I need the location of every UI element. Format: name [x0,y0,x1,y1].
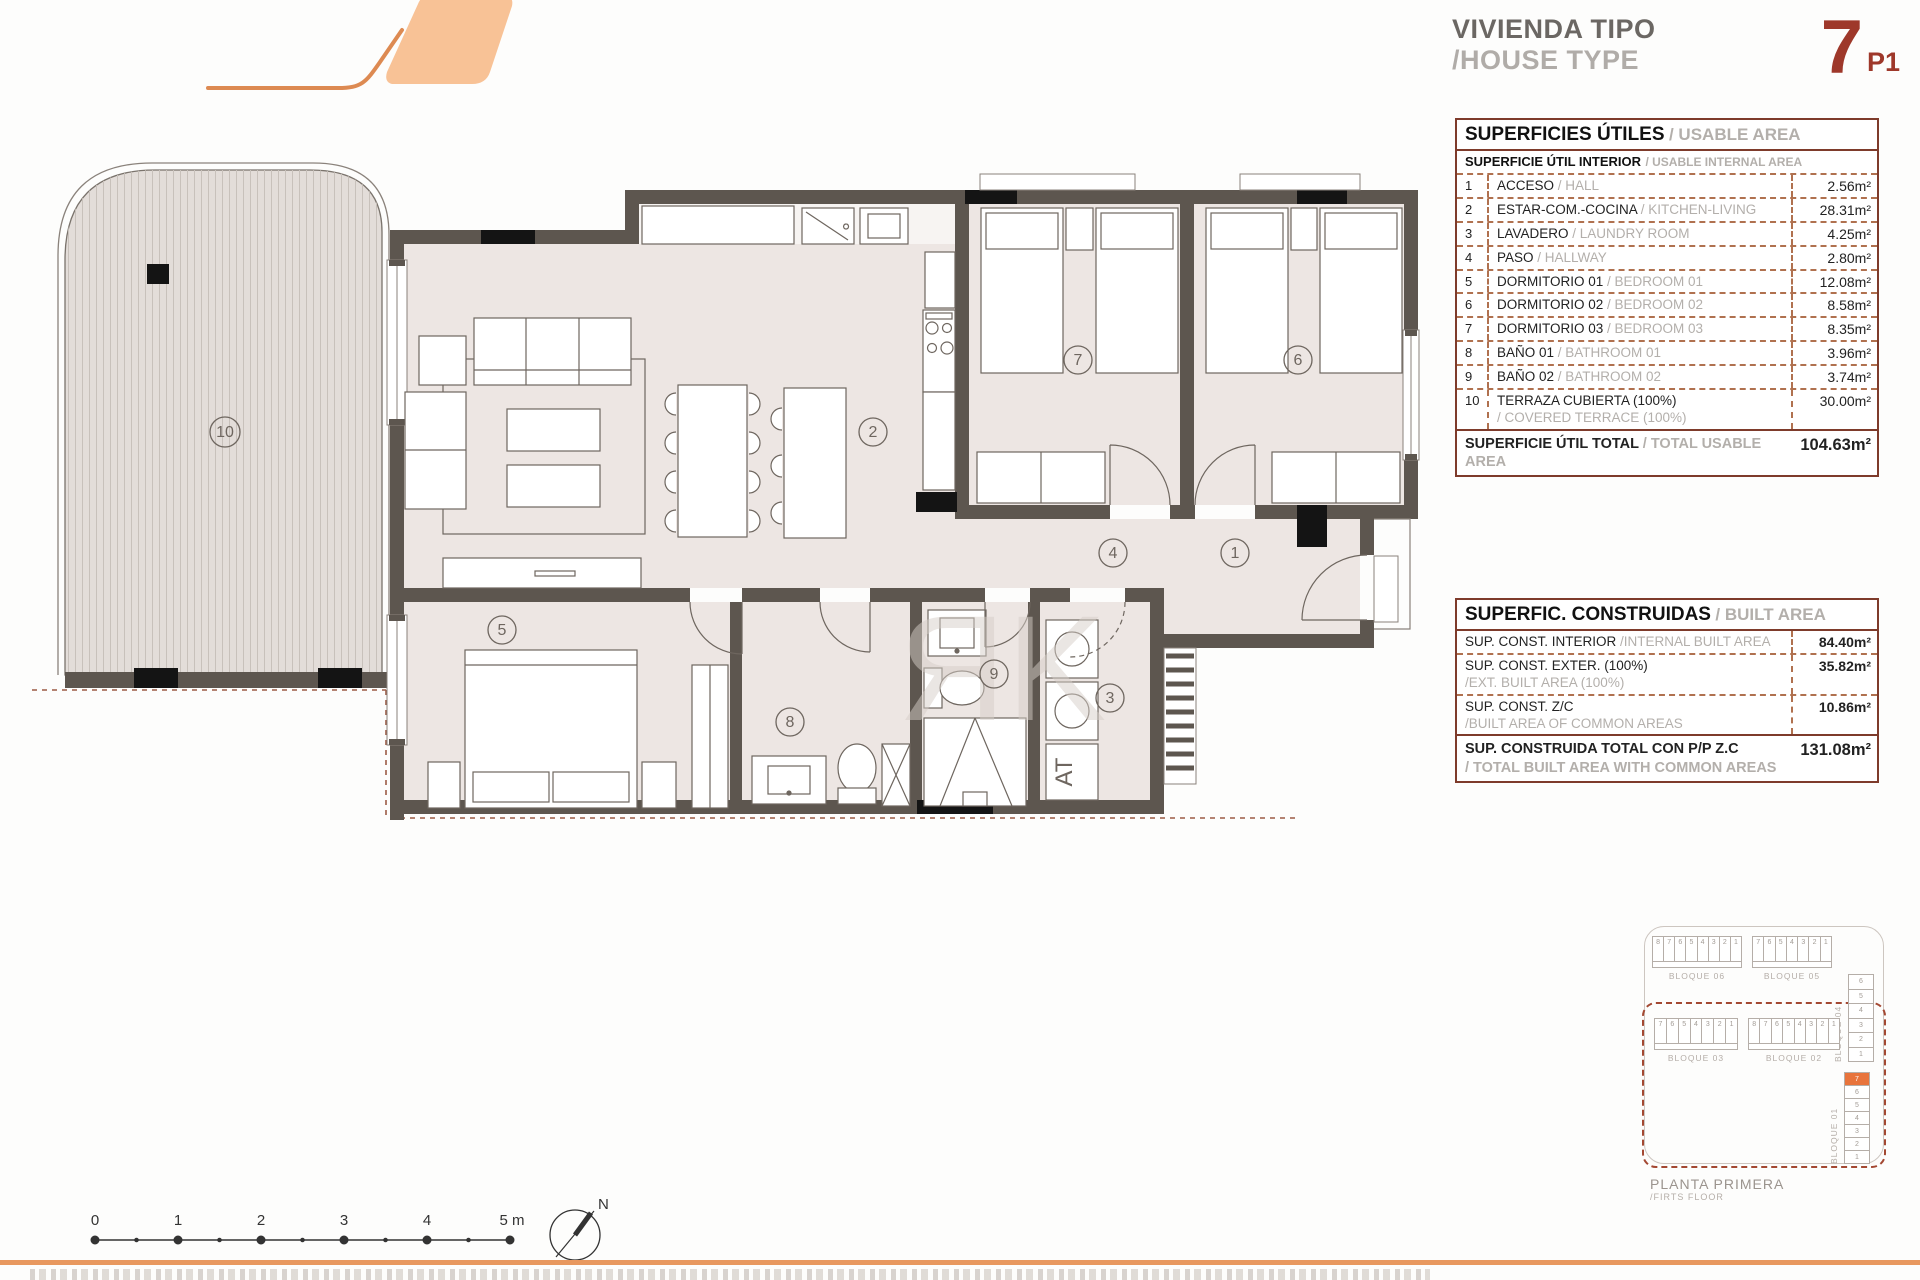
sofa [474,318,631,385]
room-area-value: 8.35m² [1791,318,1877,340]
built-table-rows: SUP. CONST. INTERIOR /INTERNAL BUILT ARE… [1457,631,1877,734]
key-plan-unit-cell-highlighted: 7 [1845,1073,1869,1086]
built-title-es: SUPERFIC. CONSTRUIDAS [1465,604,1711,625]
north-label: N [598,1196,609,1213]
scale-label-5m: 5 m [499,1212,524,1229]
coffee-table [507,465,600,507]
room-name: LAVADERO / LAUNDRY ROOM [1489,223,1791,245]
built-name: SUP. CONST. EXTER. (100%)/EXT. BUILT ARE… [1457,655,1791,694]
room-area-value: 8.58m² [1791,294,1877,316]
key-plan-unit-cell: 1 [1829,1019,1839,1043]
key-plan-cells: 7654321 [1654,1018,1738,1044]
usable-total-label: SUPERFICIE ÚTIL TOTAL / TOTAL USABLE ARE… [1465,435,1800,471]
toilet [838,744,876,792]
key-plan-unit-cell: 3 [1806,1019,1817,1043]
row-number: 2 [1457,199,1489,221]
key-plan-block-strip [1654,1044,1738,1050]
key-plan-unit-cell: 4 [1698,937,1709,961]
built-area-value: 35.82m² [1791,655,1877,694]
floor-code: P1 [1867,47,1900,78]
usable-table-row: 7DORMITORIO 03 / BEDROOM 038.35m² [1457,318,1877,342]
key-plan-floor-en: /FIRTS FLOOR [1650,1192,1784,1202]
usable-table-row: 5DORMITORIO 01 / BEDROOM 0112.08m² [1457,271,1877,295]
footer-orange-rule [0,1260,1920,1265]
room-label-2: 2 [869,424,878,441]
built-total-es: SUP. CONSTRUIDA TOTAL CON P/P Z.C [1465,741,1739,757]
house-type-title: VIVIENDA TIPO /HOUSE TYPE [1452,14,1656,82]
built-total-row: SUP. CONSTRUIDA TOTAL CON P/P Z.C / TOTA… [1457,734,1877,780]
key-plan-cells: 7654321 [1752,936,1832,962]
key-plan-unit-cell: 1 [1731,937,1741,961]
key-plan-unit-cell: 6 [1667,1019,1679,1043]
bed [1096,208,1178,373]
key-plan-unit-cell: 4 [1849,1004,1873,1019]
scale-label-2: 2 [257,1212,265,1229]
coffee-table [507,409,600,451]
usable-subtitle-en: / USABLE INTERNAL AREA [1645,155,1802,169]
key-plan-unit-cell: 2 [1720,937,1731,961]
key-plan-unit-cell: 6 [1675,937,1686,961]
key-plan-unit-cell: 3 [1845,1125,1869,1138]
built-name: SUP. CONST. Z/C/BUILT AREA OF COMMON ARE… [1457,696,1791,735]
key-plan-unit-cell: 4 [1795,1019,1806,1043]
key-plan-cells: 7654321 [1844,1072,1870,1164]
usable-table-row: 1ACCESO / HALL2.56m² [1457,175,1877,199]
sink-vanity [752,756,826,804]
built-table-row: SUP. CONST. Z/C/BUILT AREA OF COMMON ARE… [1457,696,1877,735]
company-logo [0,0,560,100]
room-name: PASO / HALLWAY [1489,247,1791,269]
scale-label-3: 3 [340,1212,348,1229]
built-table-header: SUPERFIC. CONSTRUIDAS / BUILT AREA [1457,600,1877,631]
key-plan-unit-cell: 5 [1686,937,1697,961]
key-plan-unit-cell: 6 [1849,975,1873,990]
dishwasher [860,208,908,244]
nightstand [1066,208,1093,250]
room-label-7: 7 [1074,352,1083,369]
key-plan-unit-cell: 2 [1845,1138,1869,1151]
key-plan-unit-cell: 1 [1845,1151,1869,1163]
stove [923,310,955,392]
key-plan-unit-cell: 8 [1653,937,1664,961]
usable-table-row: 2ESTAR-COM.-COCINA / KITCHEN-LIVING28.31… [1457,199,1877,223]
usable-area-table: SUPERFICIES ÚTILES / USABLE AREA SUPERFI… [1455,118,1879,477]
built-name: SUP. CONST. INTERIOR /INTERNAL BUILT ARE… [1457,631,1791,653]
logo-parallelogram [386,0,512,84]
nightstand [642,762,676,808]
built-table-row: SUP. CONST. INTERIOR /INTERNAL BUILT ARE… [1457,631,1877,655]
key-plan-block-label: BLOQUE 05 [1752,971,1832,981]
key-plan-unit-cell: 8 [1749,1019,1760,1043]
armchair [419,336,466,385]
row-number: 1 [1457,175,1489,197]
dining-table [678,385,747,537]
key-plan-block-label: BLOQUE 01 [1829,1072,1839,1164]
row-number: 8 [1457,342,1489,364]
key-plan-unit-cell: 1 [1821,937,1831,961]
room-name: BAÑO 01 / BATHROOM 01 [1489,342,1791,364]
key-plan-unit-cell: 6 [1845,1086,1869,1099]
key-plan-unit-cell: 5 [1776,937,1787,961]
room-area-value: 2.80m² [1791,247,1877,269]
footer-cutoff-text [30,1269,1430,1280]
key-plan-block: 7654321BLOQUE 01 [1844,1072,1870,1164]
room-area-value: 3.96m² [1791,342,1877,364]
room-name: DORMITORIO 01 / BEDROOM 01 [1489,271,1791,293]
room-label-9: 9 [990,666,999,683]
room-area-value: 28.31m² [1791,199,1877,221]
floor-plan: AT ЯK 10 2 7 6 4 1 5 8 9 3 [30,160,1420,840]
type-code: 7 P1 [1821,14,1900,82]
kitchen-cabinet [925,252,955,308]
key-plan-block-label: BLOQUE 03 [1654,1053,1738,1063]
room-name: DORMITORIO 02 / BEDROOM 02 [1489,294,1791,316]
usable-title-en: / USABLE AREA [1669,125,1801,144]
room-area-value: 12.08m² [1791,271,1877,293]
built-area-value: 84.40m² [1791,631,1877,653]
usable-title-es: SUPERFICIES ÚTILES [1465,124,1665,145]
key-plan-block: 654321BLOQUE 04 [1848,974,1874,1062]
title-es: VIVIENDA TIPO [1452,14,1656,45]
row-number: 10 [1457,390,1489,429]
row-number: 3 [1457,223,1489,245]
double-bed [465,650,637,808]
room-name: ESTAR-COM.-COCINA / KITCHEN-LIVING [1489,199,1791,221]
row-number: 4 [1457,247,1489,269]
scale-label-4: 4 [423,1212,431,1229]
key-plan-unit-cell: 5 [1783,1019,1794,1043]
key-plan-unit-cell: 1 [1726,1019,1737,1043]
room-label-4: 4 [1109,545,1118,562]
key-plan-block: 87654321BLOQUE 06 [1652,936,1742,981]
key-plan-unit-cell: 5 [1849,990,1873,1005]
built-total-label: SUP. CONSTRUIDA TOTAL CON P/P Z.C / TOTA… [1465,740,1800,776]
key-plan-unit-cell: 4 [1845,1112,1869,1125]
usable-table-row: 3LAVADERO / LAUNDRY ROOM4.25m² [1457,223,1877,247]
usable-total-row: SUPERFICIE ÚTIL TOTAL / TOTAL USABLE ARE… [1457,429,1877,475]
key-plan-unit-cell: 7 [1664,937,1675,961]
title-block: VIVIENDA TIPO /HOUSE TYPE 7 P1 [1452,14,1900,82]
room-area-value: 3.74m² [1791,366,1877,388]
key-plan-cells: 654321 [1848,974,1874,1062]
key-plan-floor-es: PLANTA PRIMERA [1650,1176,1784,1192]
usable-table-row: 10TERRAZA CUBIERTA (100%) / COVERED TERR… [1457,390,1877,429]
scale-label-0: 0 [91,1212,99,1229]
key-plan-unit-cell: 1 [1849,1048,1873,1062]
key-plan-unit-cell: 3 [1702,1019,1714,1043]
room-name: BAÑO 02 / BATHROOM 02 [1489,366,1791,388]
row-number: 5 [1457,271,1489,293]
usable-table-rows: 1ACCESO / HALL2.56m²2ESTAR-COM.-COCINA /… [1457,175,1877,429]
key-plan-unit-cell: 7 [1655,1019,1667,1043]
usable-total-es: SUPERFICIE ÚTIL TOTAL [1465,436,1639,452]
bed [1320,208,1402,373]
island-stools [771,408,782,524]
key-plan-block-label: BLOQUE 06 [1652,971,1742,981]
key-plan-unit-cell: 4 [1691,1019,1703,1043]
kitchen-counter-2 [923,392,955,490]
room-name: ACCESO / HALL [1489,175,1791,197]
bed [1206,208,1288,373]
north-arrow: N [550,1196,609,1260]
key-plan-block-label: BLOQUE 02 [1748,1053,1840,1063]
key-plan-unit-cell: 7 [1753,937,1764,961]
usable-table-subheader: SUPERFICIE ÚTIL INTERIOR / USABLE INTERN… [1457,151,1877,175]
scale-bar-and-compass: 0 1 2 3 4 5 m N [60,1195,640,1267]
room-name: DORMITORIO 03 / BEDROOM 03 [1489,318,1791,340]
usable-table-row: 4PASO / HALLWAY2.80m² [1457,247,1877,271]
room-area-value: 30.00m² [1791,390,1877,429]
key-plan-block-strip [1752,962,1832,968]
key-plan-block: 7654321BLOQUE 03 [1654,1018,1738,1063]
built-title-en: / BUILT AREA [1715,605,1826,624]
room-label-10: 10 [216,424,234,441]
key-plan-unit-cell: 2 [1817,1019,1828,1043]
built-area-table: SUPERFIC. CONSTRUIDAS / BUILT AREA SUP. … [1455,598,1879,783]
key-plan-unit-cell: 6 [1772,1019,1783,1043]
nightstand [1291,208,1317,250]
room-label-3: 3 [1106,690,1115,707]
key-plan-block: 87654321BLOQUE 02 [1748,1018,1840,1063]
key-plan-unit-cell: 5 [1679,1019,1691,1043]
room-area-value: 4.25m² [1791,223,1877,245]
key-plan-caption: PLANTA PRIMERA /FIRTS FLOOR [1650,1176,1784,1202]
room-label-5: 5 [498,622,507,639]
title-en: /HOUSE TYPE [1452,45,1656,76]
stairs-hatch [1164,648,1196,784]
built-total-value: 131.08m² [1800,740,1871,760]
key-plan-cells: 87654321 [1748,1018,1840,1044]
key-plan-unit-cell: 2 [1714,1019,1726,1043]
room-area-value: 2.56m² [1791,175,1877,197]
key-plan-unit-cell: 3 [1849,1019,1873,1034]
room-label-6: 6 [1294,352,1303,369]
built-table-row: SUP. CONST. EXTER. (100%)/EXT. BUILT ARE… [1457,655,1877,696]
usable-table-header: SUPERFICIES ÚTILES / USABLE AREA [1457,120,1877,151]
terrace-column [147,264,169,284]
key-plan-cells: 87654321 [1652,936,1742,962]
row-number: 6 [1457,294,1489,316]
bed [981,208,1063,373]
kitchen-island [784,388,846,538]
built-total-en: / TOTAL BUILT AREA WITH COMMON AREAS [1465,760,1776,776]
usable-total-value: 104.63m² [1800,435,1871,455]
nightstand [428,762,460,808]
row-number: 7 [1457,318,1489,340]
row-number: 9 [1457,366,1489,388]
logo-swoosh-line [208,30,402,88]
key-plan-unit-cell: 5 [1845,1099,1869,1112]
key-plan-unit-cell: 4 [1787,937,1798,961]
room-name: TERRAZA CUBIERTA (100%) / COVERED TERRAC… [1489,390,1791,429]
scale-label-1: 1 [174,1212,182,1229]
key-plan-block: 7654321BLOQUE 05 [1752,936,1832,981]
kitchen-counter [642,206,794,244]
key-plan-unit-cell: 2 [1849,1033,1873,1048]
rk-watermark: ЯK [898,584,1106,752]
key-plan-unit-cell: 6 [1764,937,1775,961]
room-label-1: 1 [1231,545,1240,562]
key-plan-block-strip [1652,962,1742,968]
type-number: 7 [1821,14,1863,82]
usable-table-row: 9BAÑO 02 / BATHROOM 023.74m² [1457,366,1877,390]
at-label: AT [1051,757,1078,786]
room-label-8: 8 [786,714,795,731]
scale-bar: 0 1 2 3 4 5 m [91,1212,525,1244]
usable-table-row: 8BAÑO 01 / BATHROOM 013.96m² [1457,342,1877,366]
usable-table-row: 6DORMITORIO 02 / BEDROOM 028.58m² [1457,294,1877,318]
built-area-value: 10.86m² [1791,696,1877,735]
key-plan-unit-cell: 7 [1760,1019,1771,1043]
key-plan-unit-cell: 3 [1798,937,1809,961]
key-plan: 87654321BLOQUE 067654321BLOQUE 05654321B… [1640,922,1892,1212]
key-plan-block-strip [1748,1044,1840,1050]
toilet-tank [838,788,876,804]
key-plan-unit-cell: 2 [1809,937,1820,961]
usable-subtitle-es: SUPERFICIE ÚTIL INTERIOR [1465,154,1641,169]
key-plan-unit-cell: 3 [1709,937,1720,961]
